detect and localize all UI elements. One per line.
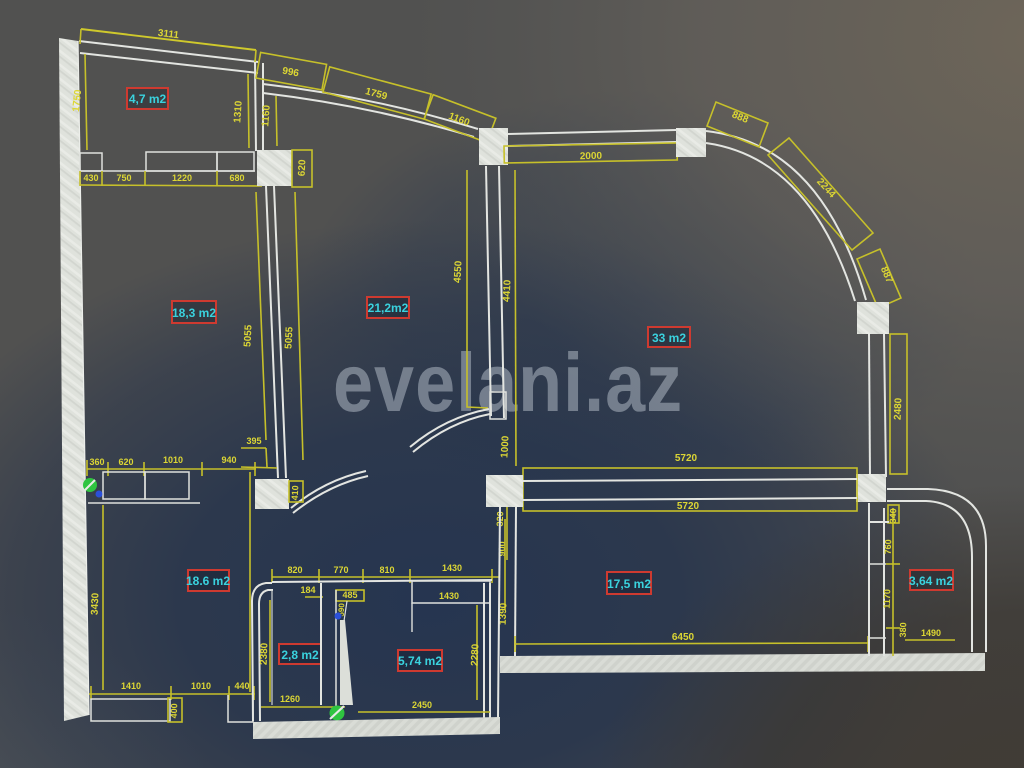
svg-text:1220: 1220	[172, 173, 192, 183]
svg-text:395: 395	[246, 436, 261, 446]
svg-text:5,74 m2: 5,74 m2	[398, 654, 442, 668]
svg-text:1170: 1170	[882, 589, 893, 609]
svg-text:1430: 1430	[442, 563, 462, 573]
svg-text:410: 410	[290, 485, 301, 501]
svg-text:750: 750	[116, 173, 131, 183]
svg-text:440: 440	[234, 681, 249, 691]
svg-text:820: 820	[287, 565, 302, 575]
svg-text:1490: 1490	[921, 628, 941, 638]
svg-text:5720: 5720	[675, 453, 698, 464]
svg-text:2280: 2280	[470, 643, 482, 666]
svg-text:2480: 2480	[893, 397, 905, 420]
svg-text:5055: 5055	[242, 324, 254, 347]
svg-text:1000: 1000	[499, 435, 511, 458]
svg-text:1410: 1410	[121, 681, 141, 691]
svg-text:5720: 5720	[677, 501, 700, 512]
svg-text:5055: 5055	[283, 326, 295, 349]
svg-text:400: 400	[169, 703, 180, 718]
svg-text:3430: 3430	[90, 592, 102, 615]
svg-text:6450: 6450	[672, 632, 695, 643]
svg-text:485: 485	[342, 590, 357, 600]
svg-text:4550: 4550	[452, 260, 464, 283]
svg-text:430: 430	[83, 173, 98, 183]
svg-text:940: 940	[221, 455, 236, 465]
svg-text:810: 810	[379, 565, 394, 575]
svg-text:184: 184	[300, 585, 315, 595]
svg-text:620: 620	[118, 457, 133, 467]
svg-text:3,64 m2: 3,64 m2	[909, 574, 953, 588]
svg-text:1160: 1160	[260, 104, 273, 127]
svg-text:4,7 m2: 4,7 m2	[129, 92, 167, 106]
svg-text:2450: 2450	[412, 700, 432, 710]
svg-text:1010: 1010	[163, 455, 183, 465]
svg-text:18.6 m2: 18.6 m2	[186, 574, 230, 588]
svg-text:1010: 1010	[191, 681, 211, 691]
svg-text:380: 380	[898, 622, 909, 637]
svg-text:18,3 m2: 18,3 m2	[172, 306, 216, 320]
svg-text:1310: 1310	[232, 100, 245, 123]
svg-text:4410: 4410	[501, 279, 513, 302]
svg-text:620: 620	[297, 159, 309, 177]
svg-text:770: 770	[333, 565, 348, 575]
svg-text:33 m2: 33 m2	[652, 331, 686, 345]
svg-text:17,5 m2: 17,5 m2	[607, 577, 651, 591]
svg-text:evelani.az: evelani.az	[333, 337, 683, 429]
svg-text:2,8 m2: 2,8 m2	[281, 648, 319, 662]
svg-text:760: 760	[883, 539, 894, 554]
svg-text:21,2m2: 21,2m2	[368, 301, 409, 315]
svg-text:2000: 2000	[580, 151, 603, 162]
svg-text:340: 340	[888, 508, 899, 523]
svg-text:1260: 1260	[280, 694, 300, 704]
svg-text:2380: 2380	[259, 642, 271, 665]
svg-text:680: 680	[229, 173, 244, 183]
svg-text:1430: 1430	[439, 591, 459, 601]
svg-text:360: 360	[89, 457, 104, 467]
